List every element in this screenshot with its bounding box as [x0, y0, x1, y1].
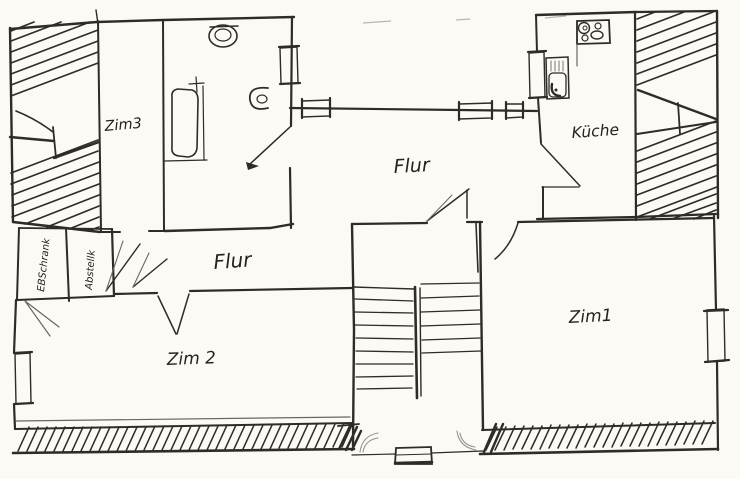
wall-roofstrip2-top [636, 11, 717, 12]
toilet-tank-line [210, 26, 238, 27]
threshold-bottom [395, 462, 432, 463]
sink-drain [555, 89, 558, 92]
label-zim3: Zim3 [103, 116, 143, 135]
label-kueche: Küche [571, 121, 620, 142]
label-flur-upper: Flur [393, 154, 431, 178]
label-zim2: Zim 2 [165, 348, 216, 370]
wall-zim3-bath [163, 20, 164, 230]
wall-kitchen-right [635, 12, 636, 220]
paper-background [0, 0, 740, 479]
floor-plan-sketch: Zim3 Flur Küche Flur EBSchrank Abstellk … [0, 0, 740, 479]
floor-plan-scan: Zim3 Flur Küche Flur EBSchrank Abstellk … [0, 0, 740, 479]
stair-spine-wall-inner [420, 288, 421, 396]
label-flur-lower: Flur [213, 247, 254, 274]
label-zim1: Zim1 [567, 306, 613, 328]
